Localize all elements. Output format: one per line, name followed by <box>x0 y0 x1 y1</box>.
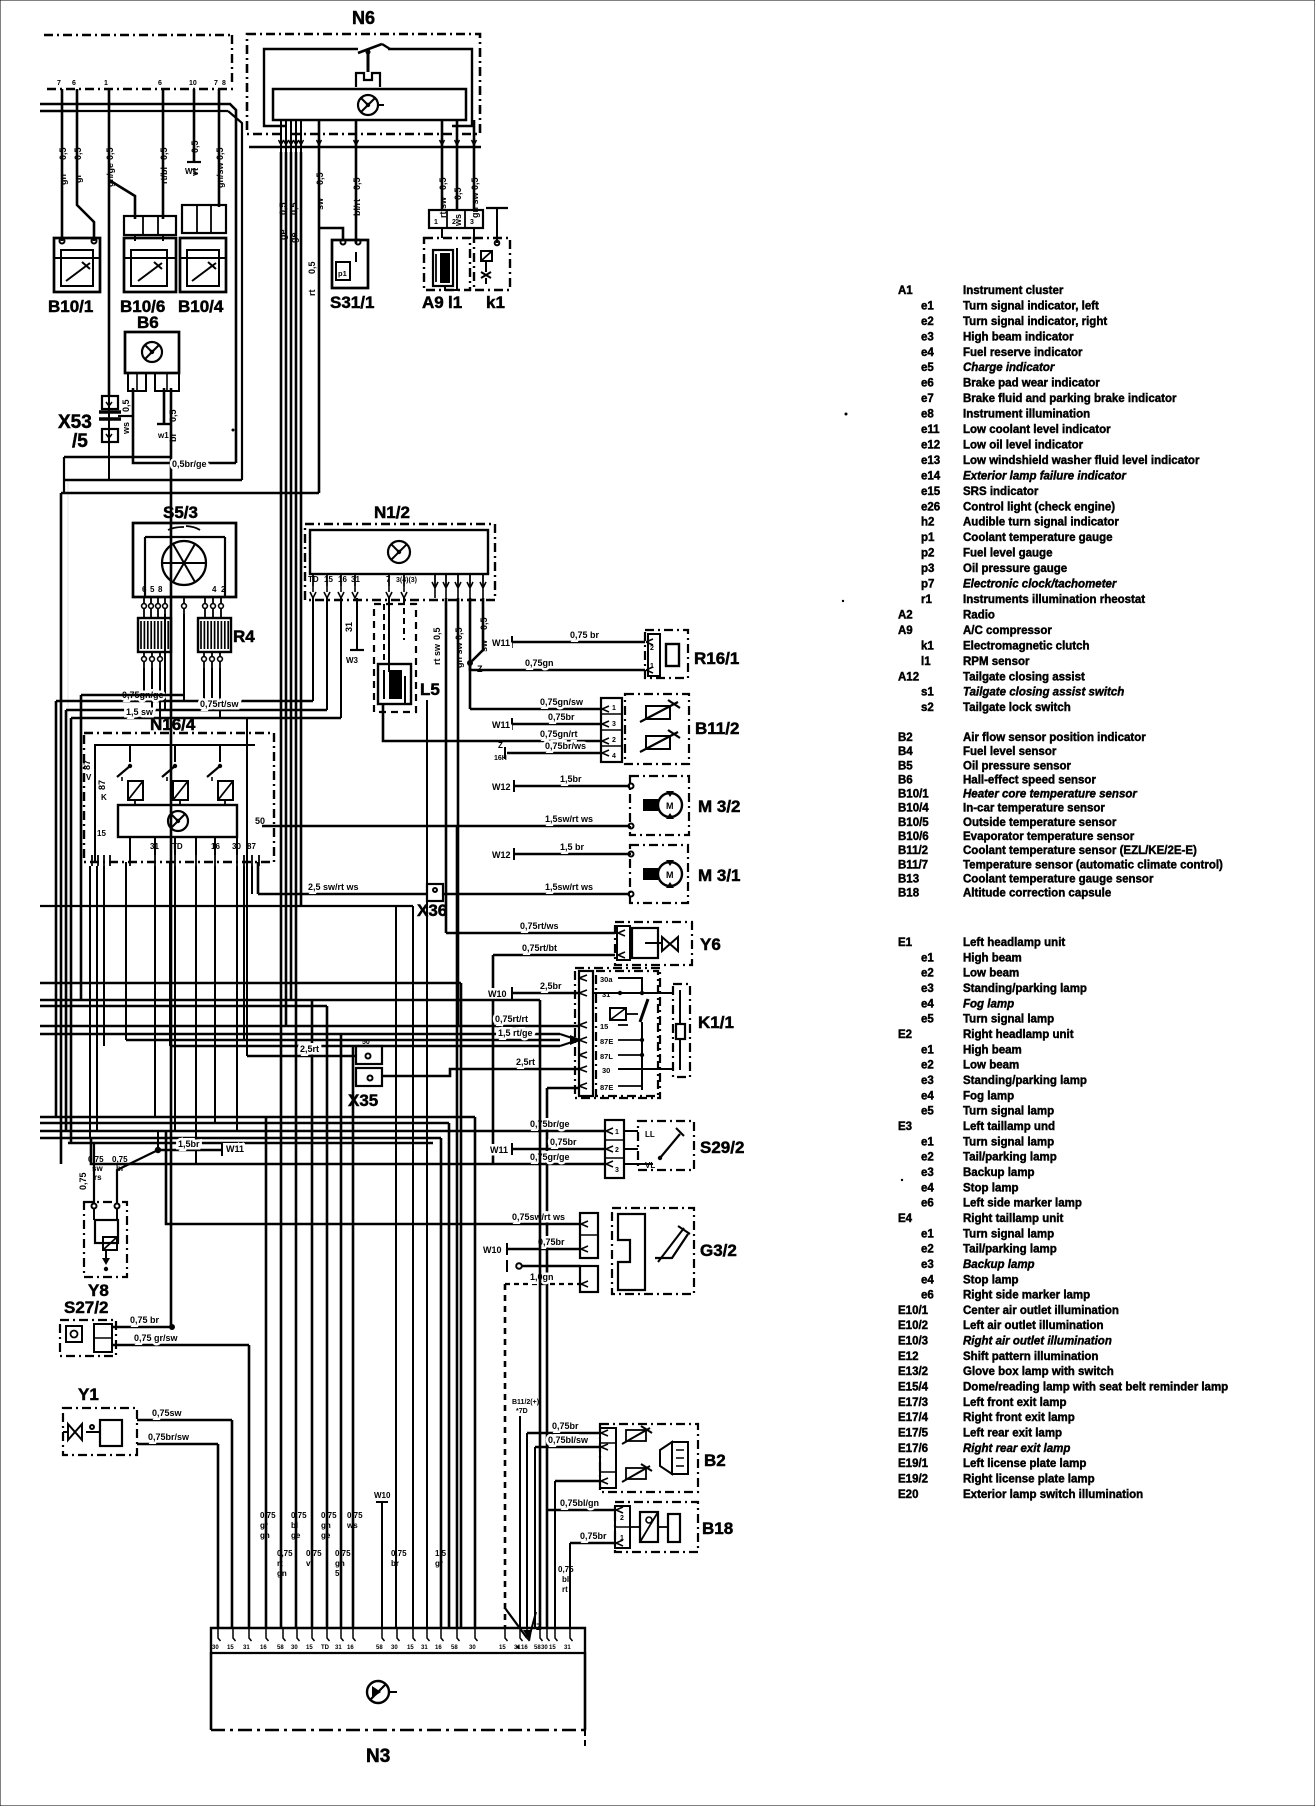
svg-text:Exterior lamp failure indicato: Exterior lamp failure indicator <box>963 470 1126 482</box>
svg-text:RPM sensor: RPM sensor <box>963 656 1030 668</box>
svg-text:LL: LL <box>645 1130 655 1139</box>
svg-text:58: 58 <box>277 1645 284 1651</box>
svg-text:Right rear exit lamp: Right rear exit lamp <box>963 1443 1070 1455</box>
svg-text:0,75: 0,75 <box>78 1172 88 1190</box>
svg-text:16H: 16H <box>494 755 507 762</box>
svg-text:58: 58 <box>451 1645 458 1651</box>
svg-text:E15/4: E15/4 <box>898 1382 929 1394</box>
svg-text:r1: r1 <box>921 594 932 606</box>
svg-text:vt: vt <box>306 1559 313 1568</box>
svg-text:A9: A9 <box>422 293 444 312</box>
svg-text:M 3/1: M 3/1 <box>698 866 741 885</box>
svg-text:0,75br: 0,75br <box>552 1421 579 1431</box>
svg-text:0,75: 0,75 <box>347 1511 363 1520</box>
svg-text:Tailgate closing assist switch: Tailgate closing assist switch <box>963 687 1124 699</box>
svg-text:30: 30 <box>212 1645 219 1651</box>
svg-text:16: 16 <box>338 575 347 584</box>
svg-text:0,5: 0,5 <box>454 627 464 640</box>
svg-text:E10/2: E10/2 <box>898 1320 928 1332</box>
svg-text:1,5sw/rt ws: 1,5sw/rt ws <box>545 814 593 824</box>
svg-text:e1: e1 <box>921 1044 934 1056</box>
svg-text:0,75sw/rt ws: 0,75sw/rt ws <box>512 1212 565 1222</box>
svg-text:Right license plate lamp: Right license plate lamp <box>963 1474 1095 1486</box>
svg-text:Shift pattern illumination: Shift pattern illumination <box>963 1351 1098 1363</box>
svg-text:k1: k1 <box>486 293 505 312</box>
svg-text:0,75br: 0,75br <box>538 1237 565 1247</box>
svg-text:gn/sw: gn/sw <box>215 161 225 188</box>
svg-text:1,5 rt/ge: 1,5 rt/ge <box>498 1028 533 1038</box>
svg-text:0,75: 0,75 <box>306 1549 322 1558</box>
svg-text:Left side marker lamp: Left side marker lamp <box>963 1198 1082 1210</box>
svg-text:1,5br: 1,5br <box>560 774 582 784</box>
svg-text:Charge indicator: Charge indicator <box>963 362 1055 374</box>
svg-text:2,5 sw/rt ws: 2,5 sw/rt ws <box>308 882 359 892</box>
svg-text:B10/4: B10/4 <box>898 803 929 815</box>
svg-text:l1: l1 <box>448 293 462 312</box>
svg-text:30: 30 <box>602 1066 610 1075</box>
svg-text:sw: sw <box>315 197 325 210</box>
svg-text:Left front exit lamp: Left front exit lamp <box>963 1397 1067 1409</box>
svg-text:0,75rt/ws: 0,75rt/ws <box>520 921 559 931</box>
svg-text:B10/1: B10/1 <box>48 297 93 316</box>
svg-text:0,75rt/rt: 0,75rt/rt <box>495 1014 528 1024</box>
svg-text:B6: B6 <box>137 313 159 332</box>
svg-text:e6: e6 <box>921 1198 934 1210</box>
svg-text:15: 15 <box>499 1645 506 1651</box>
svg-text:31: 31 <box>564 1645 571 1651</box>
svg-text:Tail/parking lamp: Tail/parking lamp <box>963 1152 1057 1164</box>
svg-text:Right taillamp unit: Right taillamp unit <box>963 1213 1063 1225</box>
svg-text:Tailgate lock switch: Tailgate lock switch <box>963 702 1071 714</box>
svg-text:Low windshield washer fluid le: Low windshield washer fluid level indica… <box>963 455 1200 467</box>
svg-text:TD: TD <box>321 1645 330 1651</box>
svg-text:k1: k1 <box>921 640 934 652</box>
svg-text:8: 8 <box>222 80 226 87</box>
svg-text:Heater core temperature sensor: Heater core temperature sensor <box>963 789 1137 801</box>
svg-text:K1/1: K1/1 <box>698 1013 734 1032</box>
svg-text:Evaporator temperature sensor: Evaporator temperature sensor <box>963 831 1135 843</box>
svg-text:E10/3: E10/3 <box>898 1336 928 1348</box>
svg-text:sw: sw <box>92 1164 103 1173</box>
svg-text:A/C compressor: A/C compressor <box>963 625 1052 637</box>
svg-text:e3: e3 <box>921 331 934 343</box>
svg-text:gn: gn <box>58 174 68 185</box>
svg-text:Y1: Y1 <box>78 1385 99 1404</box>
svg-text:p7: p7 <box>921 579 934 591</box>
svg-text:B4: B4 <box>898 746 913 758</box>
svg-text:gr: gr <box>73 174 83 183</box>
svg-text:10: 10 <box>189 80 197 87</box>
svg-text:0,75rt/bt: 0,75rt/bt <box>522 943 557 953</box>
svg-text:ws: ws <box>346 1521 358 1530</box>
svg-text:2: 2 <box>615 1147 619 1154</box>
svg-text:TD: TD <box>172 842 183 851</box>
svg-text:gn: gn <box>260 1531 270 1540</box>
svg-text:Fuel level sensor: Fuel level sensor <box>963 746 1057 758</box>
svg-text:rt: rt <box>562 1585 568 1594</box>
svg-text:e1: e1 <box>921 952 934 964</box>
svg-text:e2: e2 <box>921 1244 934 1256</box>
svg-text:6: 6 <box>72 80 76 87</box>
svg-text:0,75: 0,75 <box>112 1155 128 1164</box>
svg-text:e7: e7 <box>921 393 934 405</box>
svg-text:e5: e5 <box>921 1106 934 1118</box>
svg-text:h2: h2 <box>921 517 934 529</box>
svg-text:0,5: 0,5 <box>190 140 200 153</box>
svg-text:7: 7 <box>214 80 218 87</box>
svg-text:Exterior lamp switch illuminat: Exterior lamp switch illumination <box>963 1489 1143 1501</box>
svg-text:30a: 30a <box>600 975 613 984</box>
svg-text:87E: 87E <box>600 1037 613 1046</box>
svg-text:0,75rt/sw: 0,75rt/sw <box>200 699 240 709</box>
svg-text:0,75gr/ge: 0,75gr/ge <box>530 1152 570 1162</box>
svg-text:31: 31 <box>421 1645 428 1651</box>
svg-text:S27/2: S27/2 <box>64 1298 108 1317</box>
svg-text:rt: rt <box>307 289 317 296</box>
svg-text:Right side marker lamp: Right side marker lamp <box>963 1290 1090 1302</box>
svg-text:2: 2 <box>650 645 654 652</box>
svg-text:2: 2 <box>452 219 456 226</box>
svg-text:1: 1 <box>104 80 108 87</box>
svg-text:E17/5: E17/5 <box>898 1428 929 1440</box>
svg-text:E13/2: E13/2 <box>898 1366 928 1378</box>
svg-text:50: 50 <box>255 816 265 826</box>
svg-text:B11/2: B11/2 <box>695 719 739 738</box>
svg-text:E17/6: E17/6 <box>898 1443 928 1455</box>
svg-text:rt: rt <box>277 1559 283 1568</box>
svg-text:0,75: 0,75 <box>391 1549 407 1558</box>
svg-text:W12: W12 <box>492 782 511 792</box>
svg-text:p3: p3 <box>921 563 934 575</box>
svg-text:br: br <box>391 1559 399 1568</box>
svg-text:Right air outlet illumination: Right air outlet illumination <box>963 1336 1112 1348</box>
svg-text:0,75br: 0,75br <box>550 1137 577 1147</box>
svg-text:Fog lamp: Fog lamp <box>963 998 1014 1010</box>
svg-text:3: 3 <box>612 721 616 728</box>
svg-text:gn sw: gn sw <box>470 191 480 218</box>
svg-text:Low oil level indicator: Low oil level indicator <box>963 440 1084 452</box>
svg-text:X36: X36 <box>417 901 447 920</box>
svg-text:B10/5: B10/5 <box>898 817 929 829</box>
svg-text:4: 4 <box>612 753 616 760</box>
svg-text:R16/1: R16/1 <box>694 649 739 668</box>
svg-text:Altitude correction capsule: Altitude correction capsule <box>963 888 1111 900</box>
svg-text:vt: vt <box>190 168 200 176</box>
svg-text:e2: e2 <box>921 1060 934 1072</box>
svg-text:e4: e4 <box>921 347 934 359</box>
svg-text:Turn signal lamp: Turn signal lamp <box>963 1014 1054 1026</box>
svg-text:7: 7 <box>57 80 61 87</box>
svg-text:Turn signal lamp: Turn signal lamp <box>963 1228 1054 1240</box>
svg-text:Coolant temperature gauge sens: Coolant temperature gauge sensor <box>963 874 1154 886</box>
svg-text:W10: W10 <box>483 1245 502 1255</box>
svg-text:Low beam: Low beam <box>963 1060 1019 1072</box>
svg-text:0,5: 0,5 <box>121 399 131 412</box>
svg-text:e1: e1 <box>921 1136 934 1148</box>
svg-text:15: 15 <box>306 1645 313 1651</box>
svg-text:E17/3: E17/3 <box>898 1397 928 1409</box>
svg-text:87L: 87L <box>600 1052 613 1061</box>
svg-text:0,75gn/rt: 0,75gn/rt <box>540 729 578 739</box>
svg-text:E20: E20 <box>898 1489 918 1501</box>
svg-text:B11/2(+): B11/2(+) <box>512 1399 539 1406</box>
svg-text:SRS indicator: SRS indicator <box>963 486 1039 498</box>
svg-text:Hall-effect speed sensor: Hall-effect speed sensor <box>963 774 1096 786</box>
svg-text:1: 1 <box>650 663 654 670</box>
svg-text:gr: gr <box>260 1521 268 1530</box>
svg-text:0,75br/ge: 0,75br/ge <box>530 1119 570 1129</box>
svg-text:B10/1: B10/1 <box>898 789 929 801</box>
svg-text:B6: B6 <box>898 774 913 786</box>
svg-text:Electronic clock/tachometer: Electronic clock/tachometer <box>963 579 1117 591</box>
svg-text:0,5: 0,5 <box>105 147 115 160</box>
svg-text:sw: sw <box>479 639 489 652</box>
svg-text:ws: ws <box>121 422 131 435</box>
svg-text:Backup lamp: Backup lamp <box>963 1167 1035 1179</box>
svg-text:0,5: 0,5 <box>215 147 225 160</box>
svg-text:E10/1: E10/1 <box>898 1305 929 1317</box>
svg-text:N3: N3 <box>366 1746 390 1767</box>
svg-text:X35: X35 <box>348 1091 378 1110</box>
svg-text:p1: p1 <box>338 269 347 278</box>
svg-text:e4: e4 <box>921 998 934 1010</box>
svg-text:2: 2 <box>620 1515 624 1522</box>
svg-text:6: 6 <box>158 80 162 87</box>
svg-text:Fuel level gauge: Fuel level gauge <box>963 548 1052 560</box>
svg-text:1,5 br: 1,5 br <box>560 842 585 852</box>
svg-text:3: 3 <box>470 219 474 226</box>
svg-text:Electromagnetic clutch: Electromagnetic clutch <box>963 640 1090 652</box>
svg-text:A2: A2 <box>898 610 913 622</box>
svg-text:ge: ge <box>291 1531 301 1540</box>
svg-text:Glove box lamp with switch: Glove box lamp with switch <box>963 1366 1114 1378</box>
svg-text:15: 15 <box>97 829 106 838</box>
svg-text:0,5: 0,5 <box>438 177 448 190</box>
svg-text:0,5: 0,5 <box>453 187 463 200</box>
svg-text:2,5rt: 2,5rt <box>300 1044 319 1054</box>
svg-text:4: 4 <box>212 585 217 594</box>
svg-text:Left air outlet illumination: Left air outlet illumination <box>963 1320 1104 1332</box>
svg-text:br: br <box>116 1164 124 1173</box>
svg-text:Instruments illumination rheos: Instruments illumination rheostat <box>963 594 1145 606</box>
svg-text:Tailgate closing assist: Tailgate closing assist <box>963 671 1085 683</box>
svg-text:M: M <box>666 870 674 880</box>
svg-text:W3: W3 <box>346 656 359 665</box>
svg-text:30: 30 <box>469 1645 476 1651</box>
svg-text:2,5br: 2,5br <box>540 981 562 991</box>
svg-text:B11/2: B11/2 <box>898 845 928 857</box>
svg-text:e1: e1 <box>921 1228 934 1240</box>
svg-text:16: 16 <box>347 1645 354 1651</box>
svg-text:e4: e4 <box>921 1274 934 1286</box>
svg-text:0,5: 0,5 <box>479 617 489 630</box>
svg-text:B10/6: B10/6 <box>898 831 929 843</box>
svg-text:X53: X53 <box>58 412 92 433</box>
svg-text:l1: l1 <box>921 656 931 668</box>
svg-text:e5: e5 <box>921 1014 934 1026</box>
svg-text:30: 30 <box>391 1645 398 1651</box>
svg-text:0,75 gr/sw: 0,75 gr/sw <box>134 1333 179 1343</box>
svg-text:Stop lamp: Stop lamp <box>963 1274 1019 1286</box>
svg-text:Coolant temperature gauge: Coolant temperature gauge <box>963 532 1113 544</box>
svg-text:N1/2: N1/2 <box>374 503 410 522</box>
svg-text:5: 5 <box>150 585 155 594</box>
svg-text:50: 50 <box>362 1039 370 1046</box>
svg-text:G3/2: G3/2 <box>700 1241 737 1260</box>
svg-text:Center air outlet illumination: Center air outlet illumination <box>963 1305 1119 1317</box>
svg-text:br: br <box>168 433 178 442</box>
svg-text:N16/4: N16/4 <box>150 715 196 734</box>
svg-text:0,75bl/gn: 0,75bl/gn <box>560 1498 599 1508</box>
svg-text:e13: e13 <box>921 455 940 467</box>
svg-text:gn: gn <box>277 1569 287 1578</box>
svg-text:p1: p1 <box>921 532 935 544</box>
svg-text:rs: rs <box>94 1173 102 1182</box>
svg-text:Stop lamp: Stop lamp <box>963 1182 1019 1194</box>
svg-text:E17/4: E17/4 <box>898 1412 929 1424</box>
svg-text:R4: R4 <box>233 627 255 646</box>
svg-text:gn sw: gn sw <box>454 641 464 668</box>
svg-text:0,5: 0,5 <box>307 261 317 274</box>
svg-text:0,75: 0,75 <box>260 1511 276 1520</box>
svg-text:bl: bl <box>291 1521 298 1530</box>
svg-text:e26: e26 <box>921 501 940 513</box>
svg-text:31: 31 <box>335 1645 342 1651</box>
svg-text:0,5: 0,5 <box>315 172 325 185</box>
svg-text:e3: e3 <box>921 1075 934 1087</box>
svg-text:M: M <box>666 801 674 811</box>
svg-text:bl/rt: bl/rt <box>352 199 362 216</box>
svg-text:e3: e3 <box>921 1259 934 1271</box>
svg-text:1: 1 <box>615 1129 619 1136</box>
svg-text:0,75bl/sw: 0,75bl/sw <box>548 1435 589 1445</box>
svg-text:31: 31 <box>602 990 610 999</box>
svg-text:15: 15 <box>407 1645 414 1651</box>
svg-text:Temperature sensor (automatic: Temperature sensor (automatic climate co… <box>963 859 1223 871</box>
svg-text:W10: W10 <box>488 989 507 999</box>
svg-text:A9: A9 <box>898 625 913 637</box>
svg-text:V: V <box>86 773 92 782</box>
svg-text:B2: B2 <box>898 732 913 744</box>
svg-text:30: 30 <box>291 1645 298 1651</box>
svg-text:e6: e6 <box>921 378 934 390</box>
svg-text:e1: e1 <box>921 300 934 312</box>
svg-text:W10: W10 <box>374 1491 391 1500</box>
svg-text:/5: /5 <box>72 431 88 452</box>
svg-text:Instrument cluster: Instrument cluster <box>963 285 1064 297</box>
svg-text:S29/2: S29/2 <box>700 1138 744 1157</box>
svg-text:0,75: 0,75 <box>558 1565 574 1574</box>
svg-text:B18: B18 <box>702 1519 733 1538</box>
svg-text:e6: e6 <box>921 1290 934 1302</box>
svg-text:L5: L5 <box>420 680 440 699</box>
svg-text:e2: e2 <box>921 968 934 980</box>
svg-text:gr: gr <box>435 1559 443 1568</box>
svg-text:E19/1: E19/1 <box>898 1458 929 1470</box>
svg-text:0,5: 0,5 <box>73 147 83 160</box>
svg-text:0,5: 0,5 <box>58 147 68 160</box>
svg-text:0,5: 0,5 <box>159 147 169 160</box>
svg-text:gn: gn <box>321 1521 331 1530</box>
svg-text:E2: E2 <box>898 1029 912 1041</box>
svg-text:0,5: 0,5 <box>168 409 178 422</box>
svg-text:2: 2 <box>221 585 226 594</box>
svg-text:s2: s2 <box>921 702 934 714</box>
svg-text:87: 87 <box>247 842 256 851</box>
svg-text:1: 1 <box>620 1535 624 1542</box>
svg-text:e2: e2 <box>921 316 934 328</box>
svg-text:B2: B2 <box>704 1451 726 1470</box>
svg-text:16: 16 <box>435 1645 442 1651</box>
svg-text:0,75: 0,75 <box>291 1511 307 1520</box>
svg-text:Coolant temperature sensor (EZ: Coolant temperature sensor (EZL/KE/2E-E) <box>963 845 1197 857</box>
svg-text:e5: e5 <box>921 362 934 374</box>
svg-text:0,5: 0,5 <box>432 627 442 640</box>
svg-text:N6: N6 <box>352 8 375 28</box>
svg-text:0,75br/sw: 0,75br/sw <box>148 1432 190 1442</box>
svg-text:Backup lamp: Backup lamp <box>963 1259 1035 1271</box>
svg-text:15: 15 <box>549 1645 556 1651</box>
svg-text:0,75br: 0,75br <box>548 712 575 722</box>
svg-text:6: 6 <box>142 585 147 594</box>
svg-text:Z: Z <box>498 741 503 750</box>
svg-text:0,5br/ge: 0,5br/ge <box>172 459 207 469</box>
svg-text:31: 31 <box>243 1645 250 1651</box>
svg-text:3: 3 <box>615 1167 619 1174</box>
svg-text:0,75: 0,75 <box>88 1155 104 1164</box>
svg-text:e12: e12 <box>921 440 940 452</box>
svg-text:In-car temperature sensor: In-car temperature sensor <box>963 803 1105 815</box>
svg-text:0,75br: 0,75br <box>580 1531 607 1541</box>
svg-text:15: 15 <box>600 1022 608 1031</box>
svg-text:rt sw: rt sw <box>432 643 442 665</box>
svg-text:e3: e3 <box>921 1167 934 1179</box>
svg-text:Y6: Y6 <box>700 935 721 954</box>
svg-text:Low beam: Low beam <box>963 968 1019 980</box>
svg-text:e3: e3 <box>921 983 934 995</box>
svg-text:0,75gn: 0,75gn <box>525 658 554 668</box>
svg-text:B18: B18 <box>898 888 920 900</box>
svg-text:Outside temperature sensor: Outside temperature sensor <box>963 817 1117 829</box>
svg-text:e4: e4 <box>921 1182 934 1194</box>
svg-text:30: 30 <box>541 1645 548 1651</box>
svg-text:B5: B5 <box>898 760 913 772</box>
svg-text:0,5: 0,5 <box>470 177 480 190</box>
svg-text:3(4)(3): 3(4)(3) <box>396 577 417 584</box>
svg-text:*7D: *7D <box>516 1408 528 1415</box>
svg-text:gn: gn <box>335 1559 345 1568</box>
svg-text:0,75br/ws: 0,75br/ws <box>545 741 586 751</box>
svg-text:87: 87 <box>82 760 92 770</box>
svg-text:e8: e8 <box>921 409 934 421</box>
svg-text:Right headlamp unit: Right headlamp unit <box>963 1029 1074 1041</box>
svg-text:e11: e11 <box>921 424 940 436</box>
svg-text:16: 16 <box>260 1645 267 1651</box>
svg-text:1: 1 <box>434 219 438 226</box>
svg-text:Radio: Radio <box>963 610 995 622</box>
svg-text:Right front exit lamp: Right front exit lamp <box>963 1412 1075 1424</box>
svg-text:A12: A12 <box>898 671 919 683</box>
svg-text:0,75: 0,75 <box>335 1549 351 1558</box>
svg-text:Fog lamp: Fog lamp <box>963 1090 1014 1102</box>
svg-text:W11: W11 <box>490 1145 508 1155</box>
svg-text:B13: B13 <box>898 874 919 886</box>
svg-text:0,75gn/sw: 0,75gn/sw <box>540 697 584 707</box>
svg-text:0,75: 0,75 <box>277 1549 293 1558</box>
svg-text:15: 15 <box>324 575 333 584</box>
svg-text:W11: W11 <box>492 638 510 648</box>
svg-text:Audible turn signal indicator: Audible turn signal indicator <box>963 517 1119 529</box>
